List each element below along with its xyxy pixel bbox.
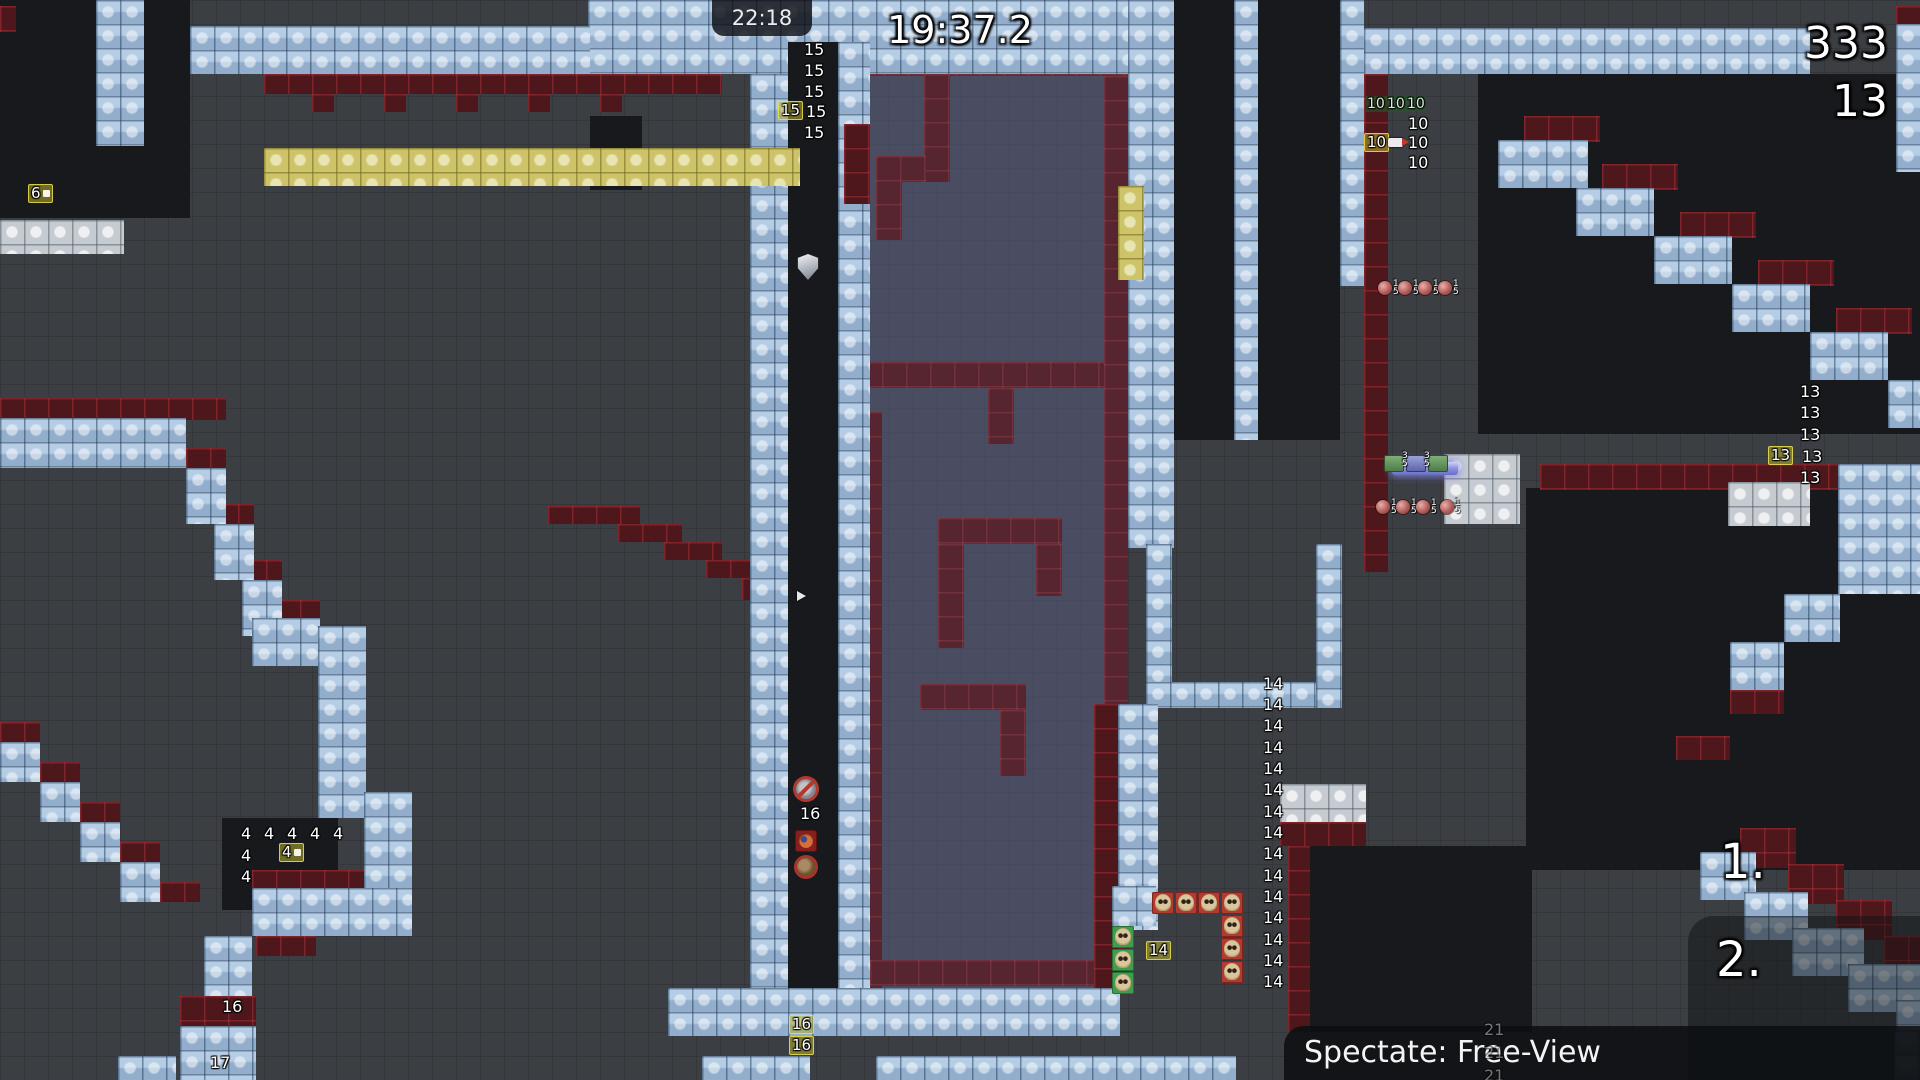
wall-blue-tiles: [186, 468, 226, 524]
score-top-right-secondary: 13: [1832, 76, 1888, 127]
void-area: [1296, 846, 1532, 1032]
skull-tile-red: [1221, 961, 1243, 983]
player-nameplate: 14: [1263, 804, 1283, 820]
wall-yellow-tiles: [264, 148, 800, 186]
skull-tile-green: [1112, 926, 1134, 948]
wall-red-tiles: [120, 842, 160, 862]
player-nameplate-badge: 10: [1364, 133, 1389, 152]
player-nameplate-faint: 21: [1484, 1022, 1504, 1038]
wall-red-tiles: [80, 802, 120, 822]
wall-blue-tiles: [0, 742, 40, 782]
wall-red-tiles: [1758, 260, 1834, 286]
wall-red-tiles: [384, 94, 406, 112]
player-nameplate: 14: [1263, 910, 1283, 926]
wall-blue-tiles: [1838, 464, 1920, 594]
wall-blue-tiles: [120, 862, 160, 902]
wall-blue-tiles: [1340, 0, 1364, 286]
wall-red-tiles: [0, 6, 16, 32]
weapon-icon: [1388, 138, 1403, 147]
wall-red-tiles: [1730, 690, 1784, 714]
void-area: [1258, 0, 1340, 440]
wall-blue-tiles: [364, 792, 412, 888]
tee-orb: 15: [1416, 499, 1437, 515]
wall-blue-tiles: [190, 26, 590, 74]
wall-blue-tiles: [1896, 24, 1920, 172]
wall-blue-tiles: [1730, 642, 1784, 690]
maze-red-tiles: [876, 156, 902, 240]
wall-red-tiles: [664, 542, 722, 560]
skull-tile-red: [1175, 892, 1197, 914]
wall-grey-tiles: [1728, 482, 1810, 526]
wall-blue-tiles: [1316, 544, 1342, 708]
hook-arrow-icon: [797, 591, 806, 601]
wall-blue-tiles: [1234, 0, 1258, 440]
wall-red-tiles: [528, 94, 550, 112]
tee-orb-body: [1416, 500, 1430, 514]
wall-red-tiles: [1280, 822, 1366, 846]
local-clock-text: 22:18: [732, 6, 793, 30]
wall-red-tiles: [1602, 164, 1678, 190]
wall-yellow-tiles: [1118, 186, 1144, 280]
wall-red-tiles: [160, 882, 200, 902]
player-nameplate: 14: [1263, 868, 1283, 884]
wall-red-tiles: [1288, 846, 1310, 1032]
beam-item-blue: [1406, 455, 1426, 472]
player-nameplate: 4: [264, 826, 274, 842]
wall-red-tiles: [1524, 116, 1600, 142]
wall-blue-tiles: [1498, 140, 1588, 188]
wall-blue-tiles: [118, 1056, 176, 1080]
tee-orb: 15: [1378, 280, 1399, 296]
wall-red-tiles: [1680, 212, 1756, 238]
player-nameplate: 14: [1263, 932, 1283, 948]
player-nameplate: 10: [1408, 155, 1428, 171]
skull-tile-red: [1152, 892, 1174, 914]
wall-blue-tiles: [1654, 236, 1732, 284]
maze-red-tiles: [1036, 544, 1062, 596]
frozen-tee-icon: [795, 830, 817, 852]
skull-tile-green: [1112, 949, 1134, 971]
maze-red-tiles: [988, 388, 1014, 444]
player-nameplate-faint: 21: [1484, 1068, 1504, 1080]
wall-red-tiles: [0, 398, 226, 420]
beam-item-green: [1384, 455, 1404, 472]
player-nameplate: 14: [1263, 825, 1283, 841]
player-nameplate: 4: [333, 826, 343, 842]
player-badge-with-tee: 6: [28, 184, 53, 203]
void-area: [1174, 0, 1234, 440]
wall-blue-tiles: [318, 626, 366, 818]
player-nameplate-badge: 16: [789, 1036, 814, 1055]
tiny-nameplate: 35: [1402, 452, 1408, 468]
spectate-mode-label: Spectate: Free-View: [1304, 1026, 1601, 1080]
player-nameplate: 17: [210, 1055, 230, 1071]
player-nameplate: 13: [1802, 449, 1822, 465]
tee-orb: 15: [1398, 280, 1419, 296]
tee-orb-body: [1418, 281, 1432, 295]
skull-tile-red: [1198, 892, 1220, 914]
rank-label-second: 2.: [1716, 932, 1762, 988]
wall-blue-tiles: [1888, 380, 1920, 428]
player-nameplate: 13: [1800, 405, 1820, 421]
tiny-nameplate: 35: [1424, 452, 1430, 468]
rank-label-first: 1.: [1720, 834, 1766, 890]
player-nameplate: 16: [222, 999, 242, 1015]
maze-red-tiles: [938, 518, 1062, 544]
wall-blue-tiles: [252, 888, 412, 936]
wall-blue-tiles: [252, 618, 320, 666]
wall-red-tiles: [180, 996, 256, 1026]
player-nameplate-green: 10: [1366, 96, 1386, 112]
wall-blue-tiles: [668, 988, 1120, 1036]
frozen-orb-icon: [797, 858, 815, 876]
maze-red-tiles: [920, 684, 1026, 710]
wall-blue-tiles: [1784, 594, 1840, 642]
player-nameplate: 10: [1408, 135, 1428, 151]
wall-blue-tiles: [1810, 332, 1888, 380]
player-nameplate: 14: [1263, 846, 1283, 862]
local-clock-badge: 22:18: [712, 0, 812, 36]
wall-blue-tiles: [80, 822, 120, 862]
player-nameplate: 10: [1408, 116, 1428, 132]
tee-orb: 15: [1376, 499, 1397, 515]
wall-blue-tiles: [702, 1056, 810, 1080]
player-nameplate-badge: 14: [1146, 941, 1171, 960]
tee-orb-body: [1376, 500, 1390, 514]
tee-orb-body: [1396, 500, 1410, 514]
skull-tile-red: [1221, 915, 1243, 937]
race-timer: 19:37.2: [820, 8, 1100, 52]
player-nameplate-badge: 13: [1768, 446, 1793, 465]
player-nameplate: 14: [1263, 761, 1283, 777]
player-nameplate: 14: [1263, 889, 1283, 905]
tee-orb: 15: [1440, 499, 1461, 515]
wall-blue-tiles: [1364, 28, 1810, 74]
wall-red-tiles: [312, 94, 334, 112]
game-viewport: 1515151515151313131313131414141414141414…: [0, 0, 1920, 1080]
tee-orb-body: [1378, 281, 1392, 295]
wall-blue-tiles: [750, 74, 788, 990]
skull-tile-green: [1112, 972, 1134, 994]
freeze-ban-icon: [796, 779, 816, 799]
wall-red-tiles: [186, 448, 226, 468]
player-nameplate-faint: 21: [1484, 1045, 1504, 1061]
player-nameplate: 4: [310, 826, 320, 842]
wall-red-tiles: [264, 74, 722, 94]
player-nameplate: 14: [1263, 782, 1283, 798]
maze-red-tiles: [858, 362, 1104, 388]
player-nameplate: 14: [1263, 953, 1283, 969]
tee-orb-body: [1398, 281, 1412, 295]
wall-grey-tiles: [0, 220, 124, 254]
wall-blue-tiles: [1146, 682, 1342, 708]
player-nameplate: 4: [287, 826, 297, 842]
wall-blue-tiles: [1112, 886, 1156, 926]
skull-tile-red: [1221, 892, 1243, 914]
player-nameplate: 13: [1800, 427, 1820, 443]
player-nameplate: 4: [241, 869, 251, 885]
player-nameplate: 14: [1263, 697, 1283, 713]
tee-orb: 15: [1418, 280, 1439, 296]
wall-red-tiles: [0, 722, 40, 742]
wall-blue-tiles: [1576, 188, 1654, 236]
skull-tile-red: [1221, 938, 1243, 960]
tee-orb-body: [1440, 500, 1454, 514]
player-badge-with-tee: 4: [279, 843, 304, 862]
player-nameplate: 4: [241, 826, 251, 842]
player-nameplate: 16: [800, 806, 820, 822]
wall-red-tiles: [1676, 736, 1730, 760]
tee-orb: 15: [1438, 280, 1459, 296]
tee-orb-body: [1438, 281, 1452, 295]
player-nameplate: 14: [1263, 676, 1283, 692]
wall-grey-tiles: [1280, 784, 1366, 822]
wall-red-tiles: [618, 524, 682, 542]
player-nameplate: 15: [804, 63, 824, 79]
maze-red-tiles: [870, 960, 1104, 986]
wall-blue-tiles: [214, 524, 254, 580]
spectate-mode-bar[interactable]: Spectate: Free-View: [1284, 1026, 1920, 1080]
wall-blue-tiles: [96, 0, 144, 146]
wall-blue-tiles: [876, 1056, 1236, 1080]
player-nameplate-green: 10: [1406, 96, 1426, 112]
score-top-right-primary: 333: [1804, 18, 1888, 69]
wall-red-tiles: [548, 506, 640, 524]
player-nameplate: 14: [1263, 974, 1283, 990]
wall-red-tiles: [456, 94, 478, 112]
player-nameplate: 4: [241, 848, 251, 864]
wall-red-tiles: [600, 94, 622, 112]
wall-red-tiles: [844, 124, 870, 204]
wall-blue-tiles: [0, 418, 186, 468]
wall-blue-tiles: [1732, 284, 1810, 332]
player-nameplate-badge: 15: [778, 101, 803, 120]
player-nameplate: 15: [804, 125, 824, 141]
wall-red-tiles: [256, 936, 316, 956]
player-nameplate-badge: 16: [789, 1015, 814, 1034]
wall-red-tiles: [1896, 6, 1920, 24]
player-nameplate: 15: [804, 84, 824, 100]
player-nameplate: 15: [806, 104, 826, 120]
player-nameplate: 14: [1263, 740, 1283, 756]
wall-blue-tiles: [204, 936, 252, 996]
player-nameplate-green: 10: [1386, 96, 1406, 112]
wall-red-tiles: [1836, 308, 1912, 334]
player-nameplate: 13: [1800, 384, 1820, 400]
player-nameplate: 14: [1263, 718, 1283, 734]
maze-red-tiles: [1000, 710, 1026, 776]
maze-red-tiles: [938, 544, 964, 648]
wall-blue-tiles: [40, 782, 80, 822]
tee-orb: 15: [1396, 499, 1417, 515]
player-nameplate: 13: [1800, 470, 1820, 486]
wall-red-tiles: [40, 762, 80, 782]
beam-item-green: [1428, 455, 1448, 472]
